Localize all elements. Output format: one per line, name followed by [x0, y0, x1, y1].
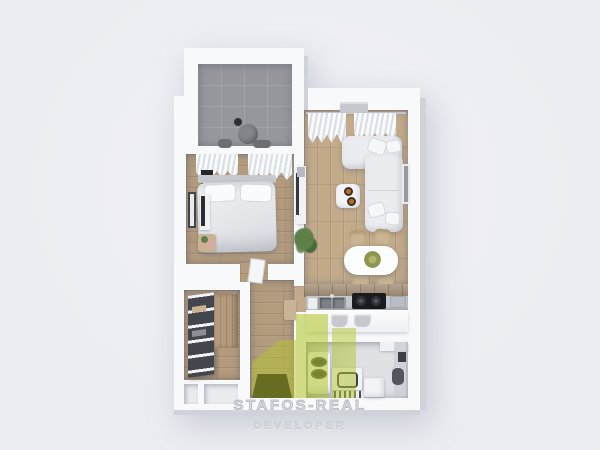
- watermark-subtitle: DEVELOPER: [150, 421, 450, 432]
- bedroom-tv-screen: [201, 196, 205, 226]
- nightstand-plant: [201, 236, 208, 243]
- sofa-seam-1: [368, 190, 400, 191]
- sink-faucet: [330, 294, 334, 298]
- sofa-pillow-4: [384, 211, 400, 225]
- dining-chair-top-right: [373, 228, 391, 244]
- balcony-chair-right: [253, 140, 271, 148]
- floorplan-render: STAFOS-REAL DEVELOPER: [0, 0, 600, 450]
- logo-building-left: [252, 340, 296, 398]
- dining-centerpiece: [364, 251, 381, 268]
- wall-art-frame: [402, 164, 410, 204]
- sink-basin-left: [320, 298, 331, 308]
- toilet: [392, 366, 404, 385]
- living-tv-screen: [296, 173, 299, 215]
- logo-building-middle: [296, 314, 328, 398]
- logo-building-right: [332, 328, 356, 398]
- nightstand-box: [208, 241, 214, 246]
- bedroom-wall-mirror: [188, 192, 196, 228]
- developer-logo-buildings: [250, 308, 360, 400]
- watermark-brand: STAFOS-REAL: [150, 397, 450, 414]
- wall-side-face-right: [420, 98, 426, 410]
- kitchen-jars: [390, 296, 406, 308]
- balcony-chair-left: [218, 139, 232, 148]
- coffee-table-plate-2: [347, 197, 356, 206]
- cooktop-burner-right: [371, 296, 381, 306]
- bathroom-wall-unit: [398, 352, 406, 362]
- balcony-kettle: [234, 118, 242, 126]
- sink-basin-right: [333, 298, 344, 308]
- coffee-table-plate-1: [344, 187, 353, 196]
- bed-pillow-right: [240, 183, 273, 202]
- media-device: [297, 167, 305, 177]
- dining-chair-top-left: [348, 229, 366, 245]
- cooktop-burner-left: [356, 296, 366, 306]
- bathroom-storage-cube: [364, 378, 384, 397]
- living-plant: [294, 228, 314, 250]
- wardrobe-side-panel: [214, 294, 238, 348]
